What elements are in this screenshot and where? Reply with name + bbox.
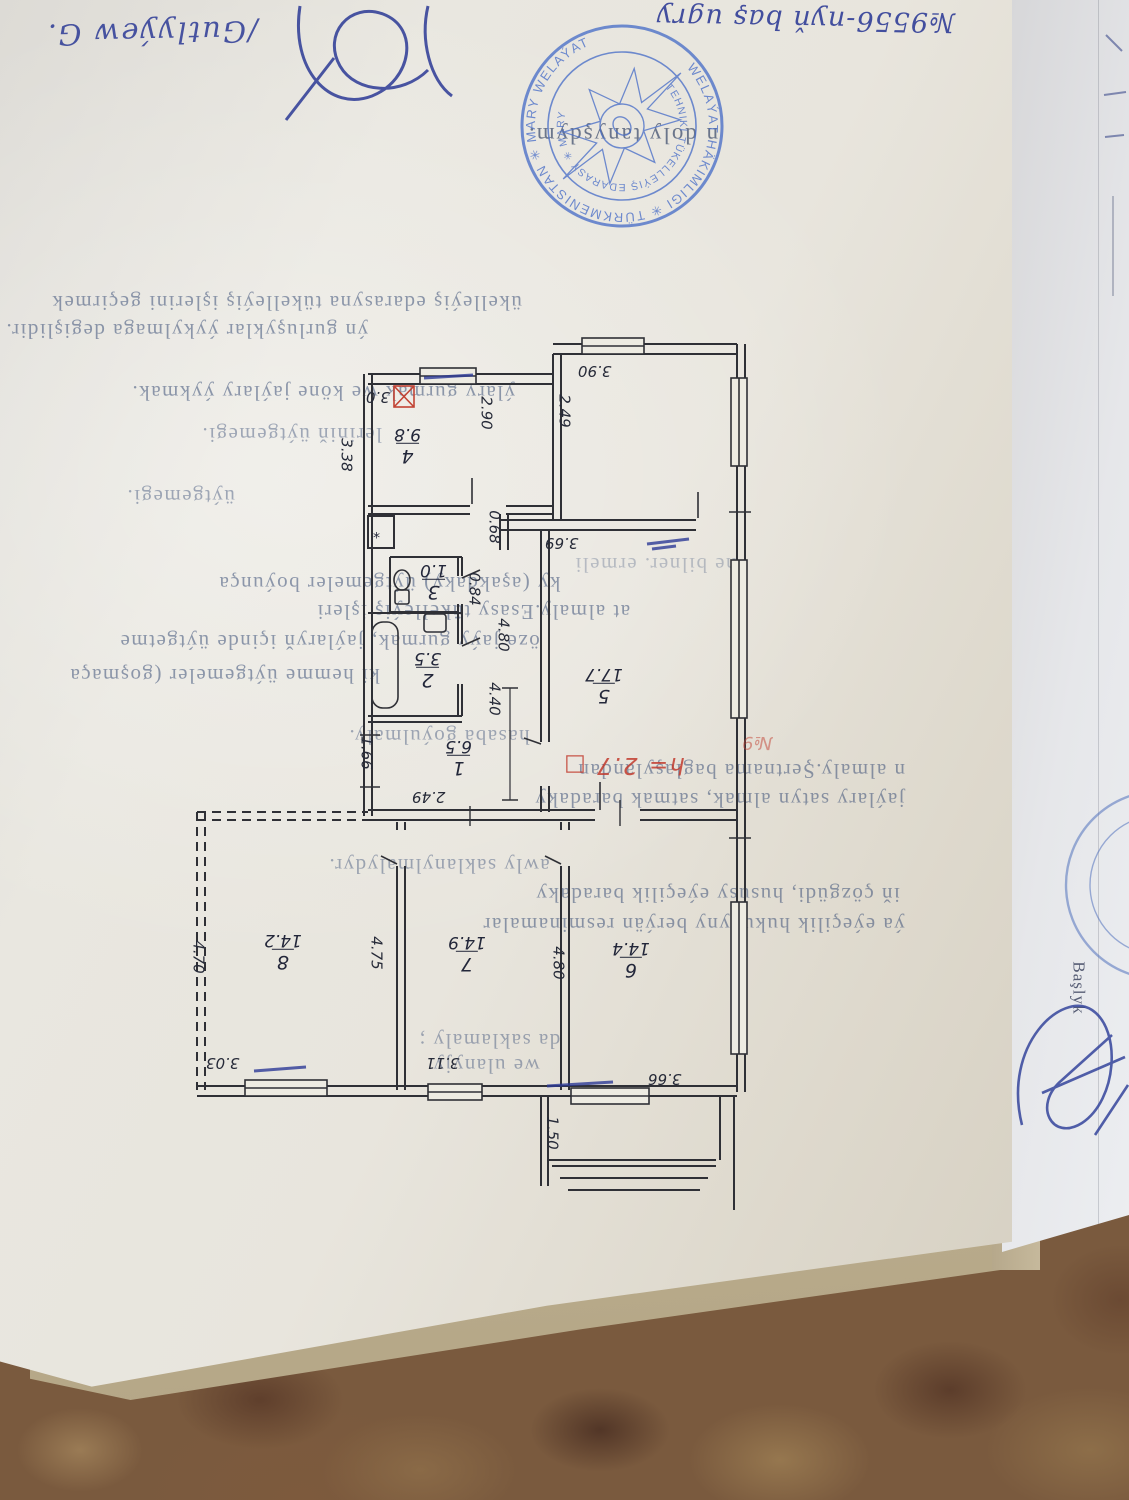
dim-label: 3.69 <box>545 534 578 552</box>
room-label: 31.0 <box>420 560 447 601</box>
stamp-outer-text: WELAÝAT HÄKIMLIGI ✳ TÜRKMENISTAN ✳ MARY … <box>492 8 752 248</box>
room-label: 16.5 <box>445 736 472 777</box>
dim-label: 4.70 <box>190 940 208 973</box>
dim-label: 3.66 <box>648 1070 681 1088</box>
edge-marks <box>1092 25 1129 185</box>
dim-label: 2.49 <box>556 394 574 427</box>
dim-label: 3.0 <box>366 388 390 406</box>
dim-label: 1.66 <box>358 736 376 769</box>
flue-mark: * <box>373 524 380 540</box>
room-label: 49.8 <box>394 424 421 465</box>
photo-of-document: n doly tanyşdym. ükelleýiş edarasyna tük… <box>0 0 1129 1500</box>
svg-text:WELAÝAT HÄKIMLIGI ✳ TÜRKMENIST: WELAÝAT HÄKIMLIGI ✳ TÜRKMENISTAN ✳ MARY … <box>492 8 752 248</box>
room-label: 614.4 <box>612 938 650 979</box>
room-label: 517.7 <box>585 664 623 705</box>
red-number-note: №9 <box>742 732 772 753</box>
dim-label: 0.68 <box>486 510 504 543</box>
handwritten-name: /Gutlyýew G. <box>46 14 258 52</box>
dim-label: 4.80 <box>495 618 513 651</box>
dim-label: 3.11 <box>426 1054 459 1072</box>
dim-label: 2.90 <box>478 396 496 429</box>
dim-label: 3.90 <box>578 362 611 380</box>
dim-label: 2.49 <box>412 788 445 806</box>
dim-label: 3.38 <box>338 438 356 471</box>
round-stamp: WELAÝAT HÄKIMLIGI ✳ TÜRKMENISTAN ✳ MARY … <box>492 8 752 248</box>
dim-label: 4.80 <box>550 946 568 979</box>
dim-label: 0.84 <box>466 572 484 605</box>
dim-label: 4.40 <box>486 682 504 715</box>
room-label: 814.2 <box>264 930 302 971</box>
dim-label: 3.03 <box>206 1054 239 1072</box>
dim-label: 1.50 <box>544 1116 562 1149</box>
signature-top <box>250 0 510 140</box>
dim-label: 4.75 <box>368 936 386 969</box>
room-label: 23.5 <box>414 648 441 689</box>
red-height-note: h= 2.7 □ <box>562 752 685 778</box>
room-label: 714.9 <box>448 932 486 973</box>
signature-bottom <box>1000 975 1129 1155</box>
